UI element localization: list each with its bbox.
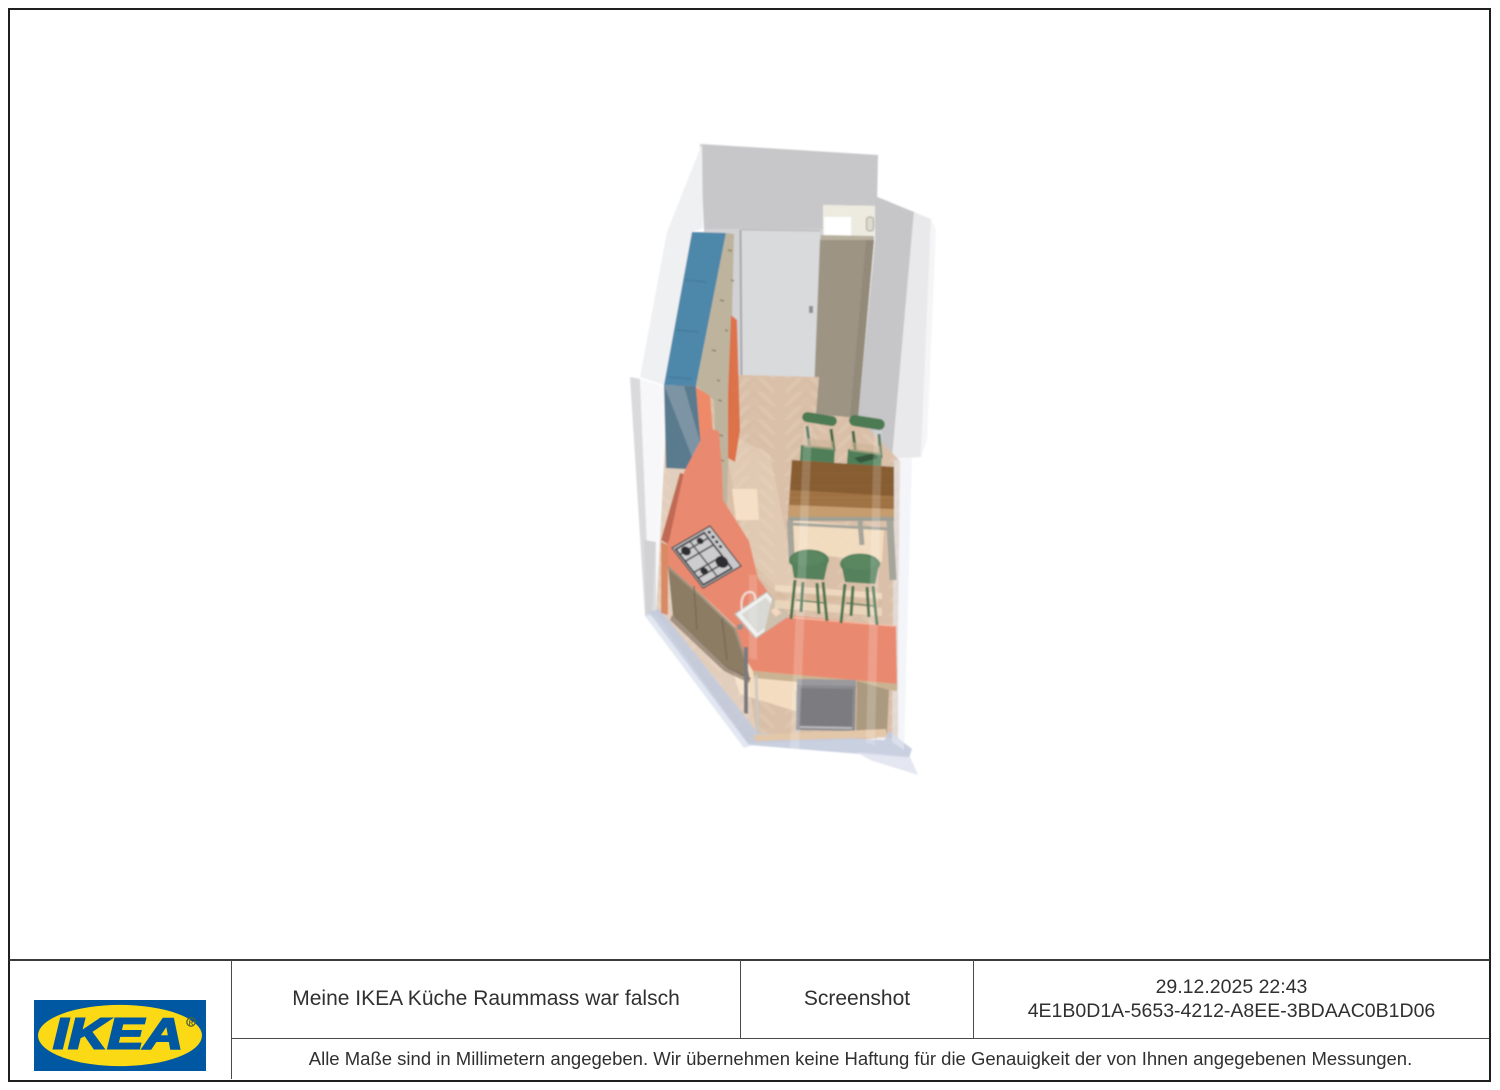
svg-text:IKEA: IKEA (53, 1010, 183, 1059)
svg-text:R: R (189, 1020, 194, 1027)
